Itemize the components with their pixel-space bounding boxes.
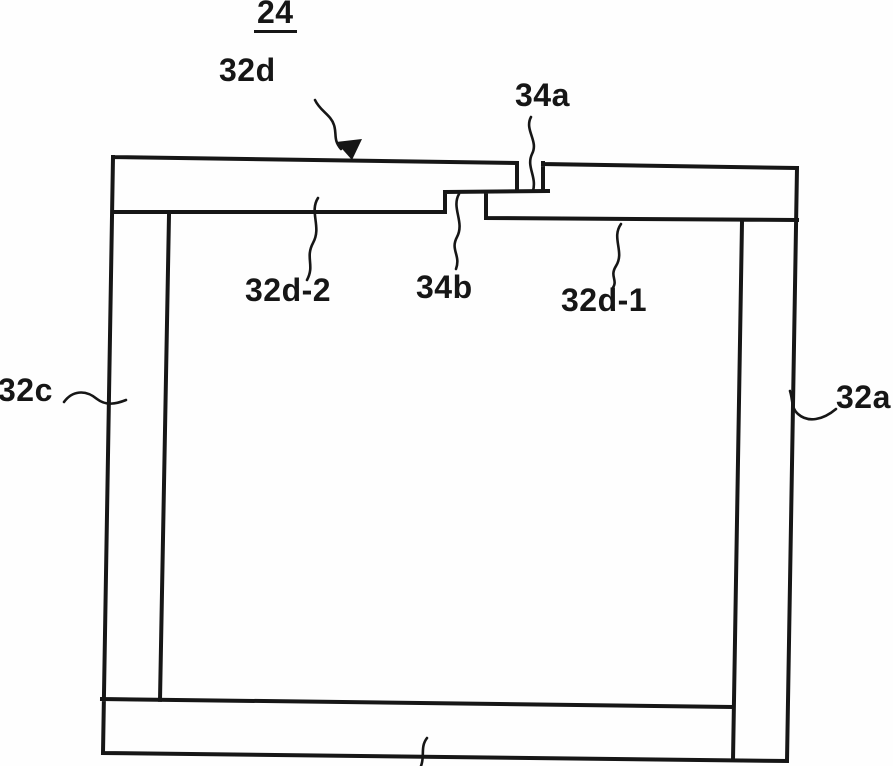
patent-figure: 24 32d 34a 32d-2 34b 32d-1 32c 32a — [0, 0, 893, 766]
label-left-member: 32c — [0, 374, 53, 406]
frame-outline — [102, 157, 797, 761]
label-joint-lower: 34b — [416, 271, 473, 303]
label-right-member: 32a — [836, 381, 891, 413]
label-joint-upper: 34a — [515, 79, 570, 111]
leader-34a — [529, 117, 534, 191]
leader-bottom-cropped — [421, 738, 427, 766]
frame-diagram — [0, 0, 893, 766]
leader-34b — [455, 194, 460, 269]
arrow-32d-leader — [315, 100, 341, 149]
figure-number: 24 — [254, 0, 297, 33]
leader-32d-1 — [612, 224, 621, 289]
leader-32c — [64, 393, 126, 404]
label-top-member: 32d — [219, 54, 276, 86]
label-top-right-piece: 32d-1 — [561, 284, 647, 316]
label-top-left-piece: 32d-2 — [245, 274, 331, 306]
leader-32a — [790, 391, 836, 419]
